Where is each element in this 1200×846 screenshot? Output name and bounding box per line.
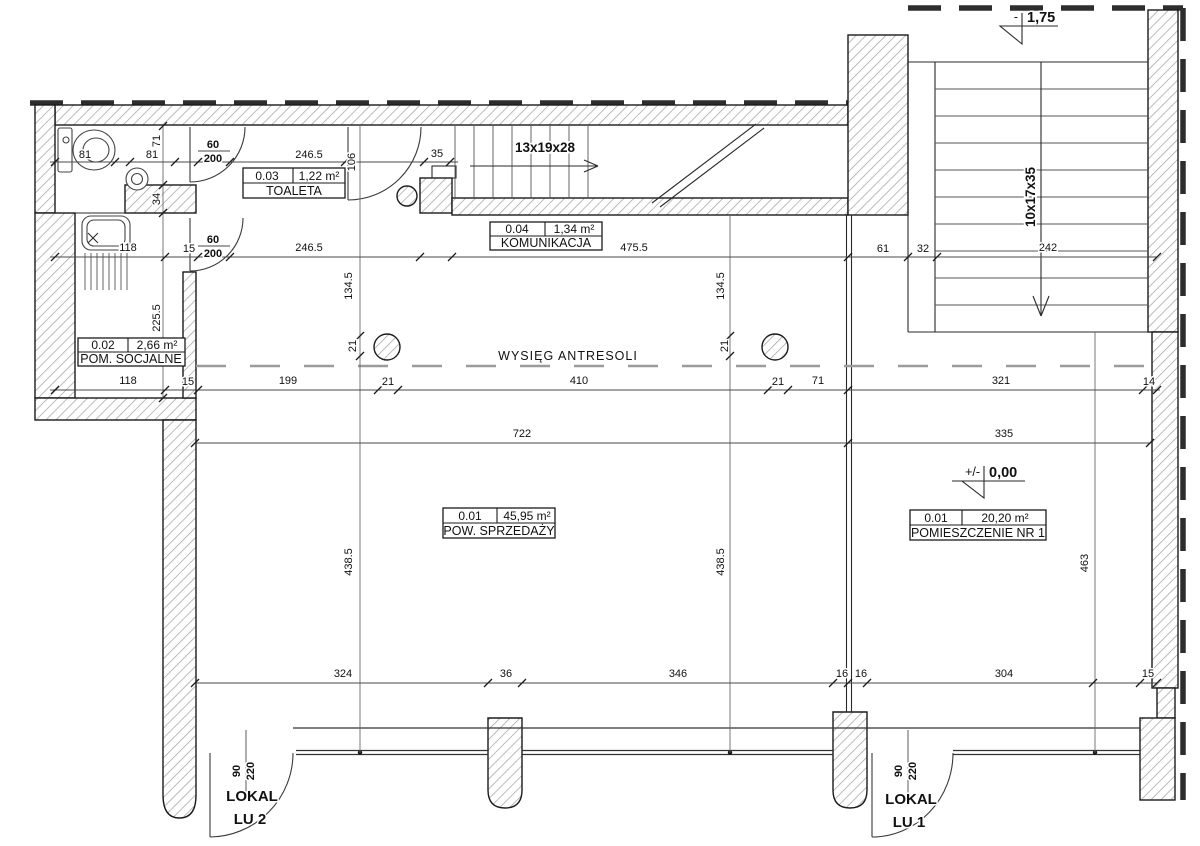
level-prefix: +/- bbox=[965, 465, 980, 479]
floor-plan: 10x17x35 13x19x28 bbox=[0, 0, 1200, 846]
column bbox=[762, 334, 788, 360]
room-number: 0.03 bbox=[255, 169, 279, 183]
dim: 242 bbox=[1039, 242, 1057, 254]
dim: 118 bbox=[119, 375, 137, 387]
dim: 475.5 bbox=[620, 242, 648, 254]
dimension-lines bbox=[50, 122, 1161, 795]
dim: 304 bbox=[995, 668, 1013, 680]
room-area: 2,66 m² bbox=[137, 338, 178, 352]
unit-label-lu2: LOKAL LU 2 bbox=[226, 788, 278, 828]
dim: 71 bbox=[812, 375, 824, 387]
room-table-komunikacja: 0.04 1,34 m² KOMUNIKACJA bbox=[490, 222, 602, 250]
dim: 134.5 bbox=[343, 272, 355, 300]
dim: 21 bbox=[719, 340, 731, 352]
door-size: 220 bbox=[907, 762, 919, 780]
door-size: 60 bbox=[207, 139, 219, 151]
dim: 16 bbox=[836, 668, 848, 680]
door-size: 200 bbox=[204, 248, 222, 260]
room-number: 0.04 bbox=[505, 222, 529, 236]
dim: 21 bbox=[382, 376, 394, 388]
mezzanine-label: WYSIĘG ANTRESOLI bbox=[498, 349, 638, 363]
washbasin-fixture bbox=[126, 168, 148, 190]
column bbox=[397, 186, 417, 206]
room-area: 20,20 m² bbox=[981, 511, 1028, 525]
room-number: 0.02 bbox=[91, 338, 115, 352]
level-triangle-icon bbox=[1000, 26, 1022, 44]
room-name: TOALETA bbox=[266, 184, 322, 198]
partition-wall bbox=[847, 215, 852, 712]
dim: 34 bbox=[151, 193, 163, 205]
room-number: 0.01 bbox=[458, 509, 482, 523]
dim: 106 bbox=[346, 153, 358, 171]
corridor-stair-label: 13x19x28 bbox=[515, 140, 576, 155]
room-name: POMIESZCZENIE NR 1 bbox=[911, 526, 1045, 540]
property-boundary-line bbox=[30, 8, 1183, 800]
room-name: KOMUNIKACJA bbox=[501, 236, 592, 250]
storefront-pier-lu1 bbox=[833, 712, 867, 808]
level-marker-upper: - 1,75 bbox=[1000, 10, 1058, 44]
room-table-pow-sprzedazy: 0.01 45,95 m² POW. SPRZEDAŻY bbox=[443, 508, 555, 538]
dim: 324 bbox=[334, 668, 352, 680]
door-size: 90 bbox=[893, 765, 905, 777]
dim: 438.5 bbox=[343, 548, 355, 576]
dim: 246.5 bbox=[295, 242, 323, 254]
dim: 134.5 bbox=[715, 272, 727, 300]
dim: 335 bbox=[995, 428, 1013, 440]
dim: 21 bbox=[772, 376, 784, 388]
unit-label-lu1: LOKAL LU 1 bbox=[885, 791, 937, 831]
dim: 722 bbox=[513, 428, 531, 440]
dim: 71 bbox=[151, 135, 163, 147]
dim: 463 bbox=[1079, 554, 1091, 572]
level-value: 0,00 bbox=[989, 465, 1017, 481]
door-size: 90 bbox=[231, 765, 243, 777]
dim: 346 bbox=[669, 668, 687, 680]
dim: 32 bbox=[917, 243, 929, 255]
walls bbox=[35, 10, 1178, 818]
dim: 16 bbox=[855, 668, 867, 680]
dim: 81 bbox=[146, 149, 158, 161]
dim: 225.5 bbox=[151, 304, 163, 332]
dim: 15 bbox=[182, 376, 194, 388]
dim: 36 bbox=[500, 668, 512, 680]
wall-step bbox=[432, 166, 456, 178]
level-triangle-icon bbox=[962, 481, 984, 498]
dim: 246.5 bbox=[295, 149, 323, 161]
column bbox=[374, 334, 400, 360]
level-prefix: - bbox=[1014, 10, 1018, 24]
dim: 410 bbox=[570, 375, 588, 387]
room-name: POM. SOCJALNE bbox=[80, 352, 181, 366]
corridor-staircase: 13x19x28 bbox=[455, 124, 764, 207]
level-marker-ground: +/- 0,00 bbox=[952, 465, 1025, 498]
unit-name: LOKAL bbox=[885, 791, 937, 808]
door-size: 60 bbox=[207, 234, 219, 246]
unit-name: LOKAL bbox=[226, 788, 278, 805]
main-staircase: 10x17x35 bbox=[908, 62, 1152, 332]
left-wall-pilaster bbox=[163, 420, 196, 818]
door-size: 200 bbox=[204, 153, 222, 165]
level-value: 1,75 bbox=[1027, 10, 1055, 26]
dim: 14 bbox=[1143, 376, 1155, 388]
radiator bbox=[85, 253, 127, 290]
dim: 21 bbox=[347, 340, 359, 352]
room-number: 0.01 bbox=[924, 511, 948, 525]
room-area: 1,34 m² bbox=[554, 222, 595, 236]
room-table-pomieszczenie-nr-1: 0.01 20,20 m² POMIESZCZENIE NR 1 bbox=[910, 510, 1046, 540]
storefront bbox=[293, 728, 1140, 755]
dim: 15 bbox=[1142, 668, 1154, 680]
dim: 35 bbox=[431, 148, 443, 160]
dim: 118 bbox=[119, 242, 137, 254]
mezzanine-overhang: WYSIĘG ANTRESOLI bbox=[196, 349, 1150, 366]
room-name: POW. SPRZEDAŻY bbox=[443, 524, 555, 538]
door-size: 220 bbox=[245, 762, 257, 780]
unit-number: LU 2 bbox=[234, 811, 267, 828]
dim: 81 bbox=[79, 149, 91, 161]
room-table-toaleta: 0.03 1,22 m² TOALETA bbox=[243, 168, 345, 198]
unit-number: LU 1 bbox=[893, 814, 926, 831]
main-stair-label: 10x17x35 bbox=[1023, 166, 1038, 227]
dim: 438.5 bbox=[715, 548, 727, 576]
room-area: 45,95 m² bbox=[503, 509, 550, 523]
room-table-pom-socjalne: 0.02 2,66 m² POM. SOCJALNE bbox=[78, 338, 185, 366]
dim: 15 bbox=[183, 243, 195, 255]
stair-direction-arrow bbox=[470, 160, 598, 172]
dim: 199 bbox=[279, 375, 297, 387]
dim: 321 bbox=[992, 375, 1010, 387]
storefront-pier-mid bbox=[488, 718, 522, 808]
grid-lines bbox=[163, 126, 1095, 753]
room-area: 1,22 m² bbox=[299, 169, 340, 183]
dim: 61 bbox=[877, 243, 889, 255]
